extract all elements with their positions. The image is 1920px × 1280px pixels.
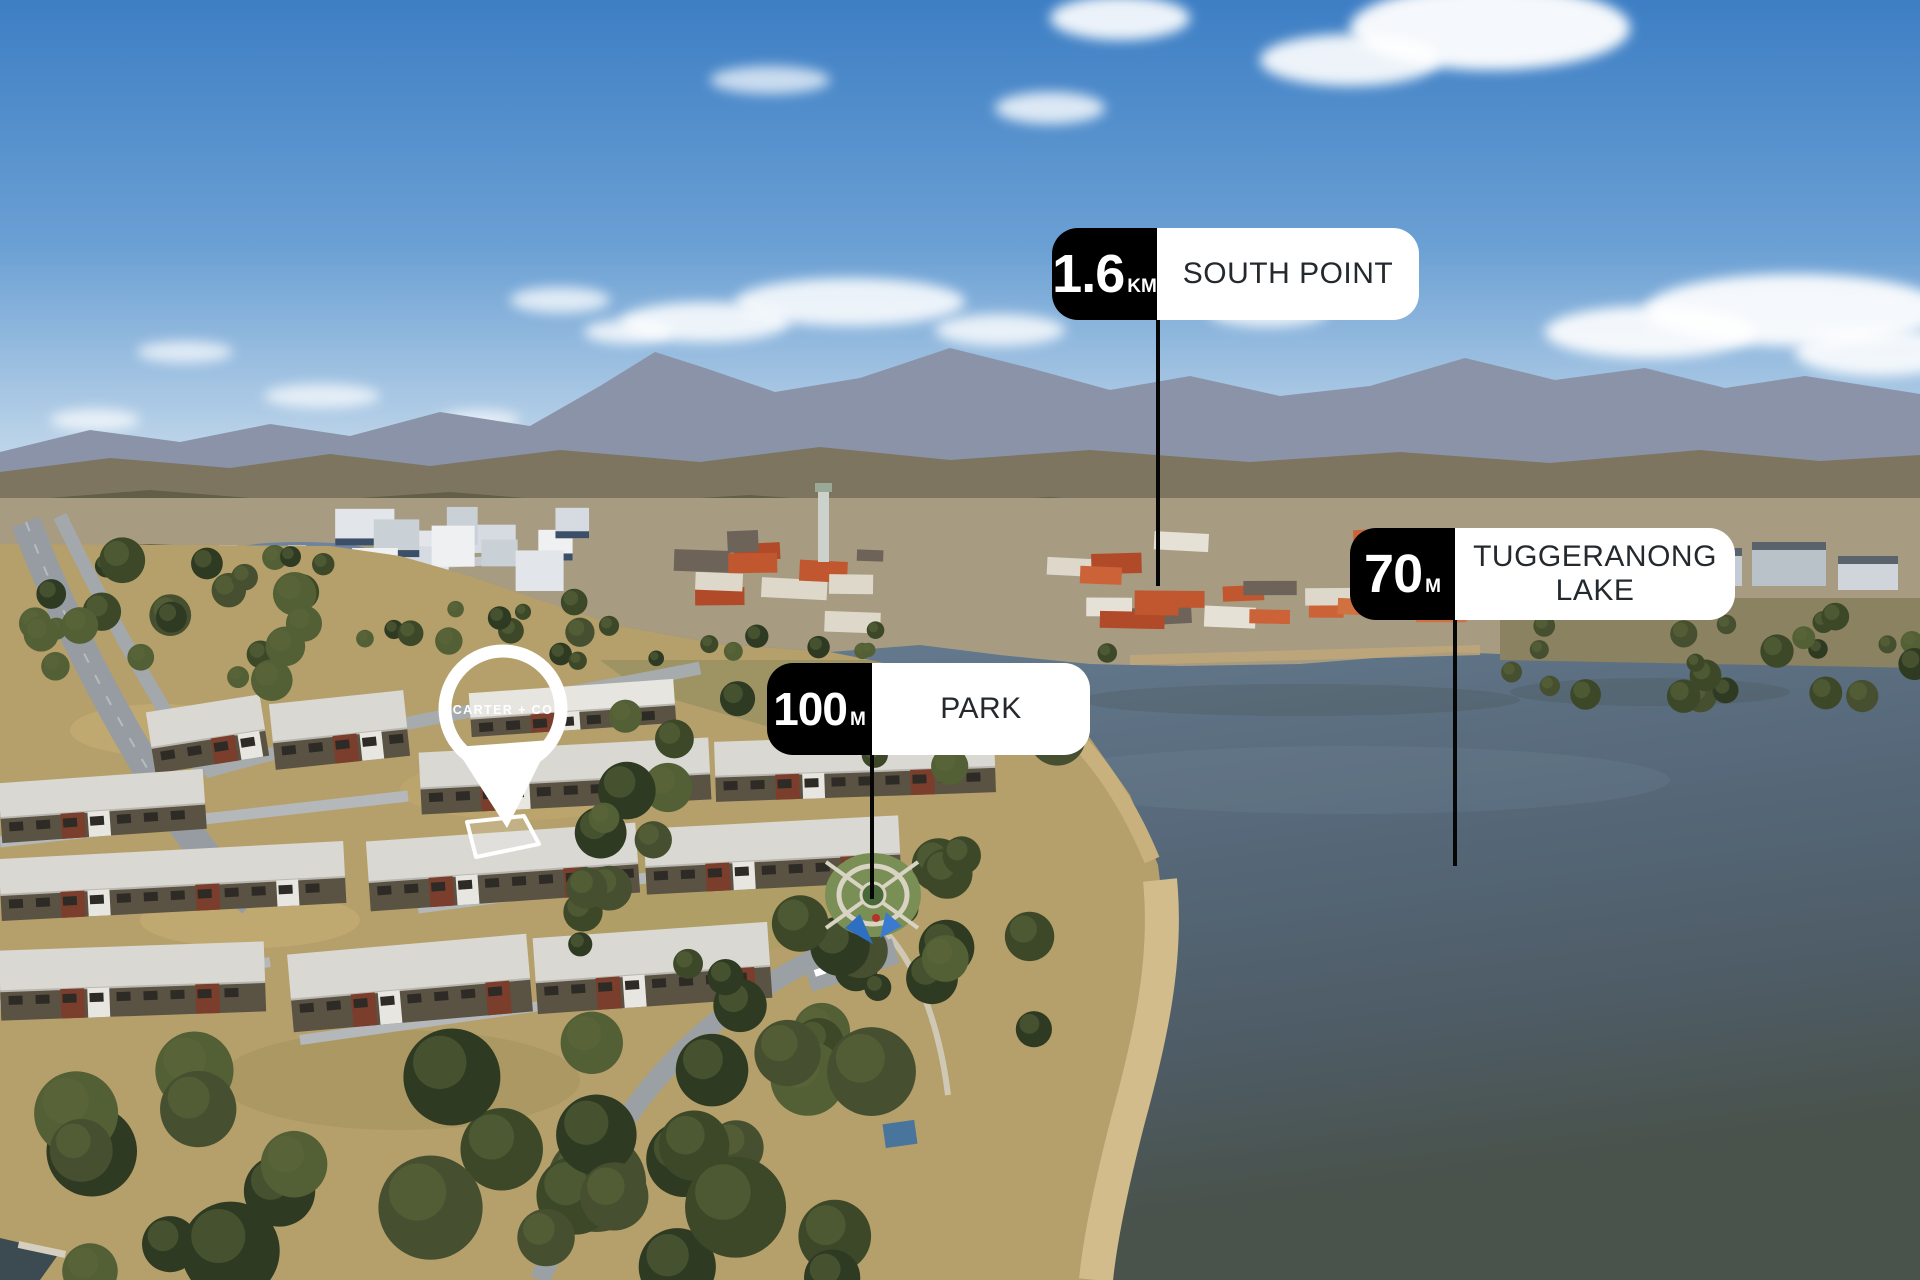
aerial-photo bbox=[0, 0, 1920, 1280]
aerial-photo-stage: 1.6 KM SOUTH POINT 70 M TUGGERANONG LAKE… bbox=[0, 0, 1920, 1280]
distance-marker-tuggeranong-lake: 70 M TUGGERANONG LAKE bbox=[1350, 528, 1735, 620]
marker-distance-value: 70 bbox=[1364, 528, 1422, 620]
pin-brand-text: CARTER + CO bbox=[453, 703, 553, 717]
marker-distance-badge: 100 M bbox=[767, 663, 872, 755]
marker-place-name: PARK bbox=[872, 663, 1090, 755]
picnic-shelter bbox=[882, 1120, 917, 1148]
location-pin-icon: CARTER + CO bbox=[430, 635, 590, 845]
marker-place-name: SOUTH POINT bbox=[1157, 228, 1419, 320]
marker-distance-badge: 1.6 KM bbox=[1052, 228, 1157, 320]
distance-marker-south-point: 1.6 KM SOUTH POINT bbox=[1052, 228, 1419, 320]
leader-line-park bbox=[870, 751, 874, 899]
marker-place-name: TUGGERANONG LAKE bbox=[1455, 528, 1735, 620]
marker-distance-unit: M bbox=[850, 709, 866, 731]
marker-distance-value: 100 bbox=[773, 663, 847, 755]
water-tower bbox=[818, 488, 829, 562]
marker-distance-unit: M bbox=[1425, 576, 1441, 598]
marker-distance-badge: 70 M bbox=[1350, 528, 1455, 620]
water-tower-top bbox=[815, 483, 832, 492]
leader-line-south-point bbox=[1156, 316, 1160, 586]
distance-marker-park: 100 M PARK bbox=[767, 663, 1090, 755]
marker-distance-unit: KM bbox=[1127, 276, 1157, 298]
marker-distance-value: 1.6 bbox=[1052, 228, 1124, 320]
leader-line-tuggeranong-lake bbox=[1453, 616, 1457, 866]
